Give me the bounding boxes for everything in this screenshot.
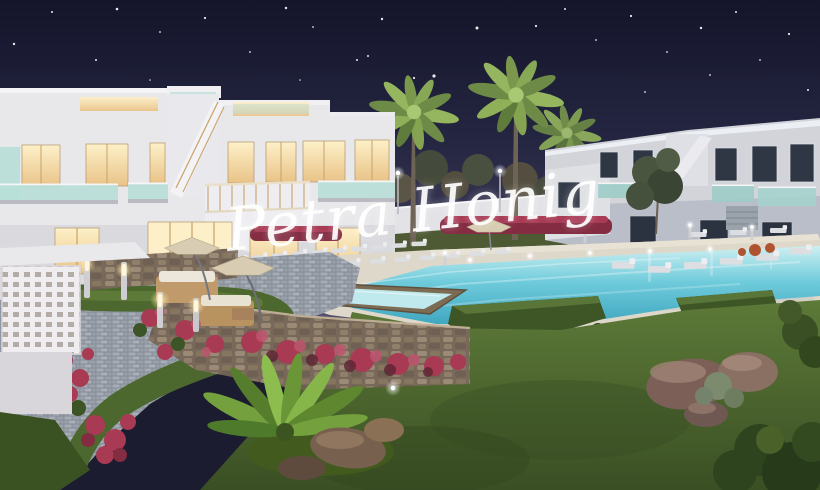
rendering-image: Petra Honig bbox=[0, 0, 820, 490]
ground-spotlight bbox=[385, 380, 401, 396]
scene-svg bbox=[0, 0, 820, 490]
rooftop-lit-window bbox=[80, 97, 158, 111]
